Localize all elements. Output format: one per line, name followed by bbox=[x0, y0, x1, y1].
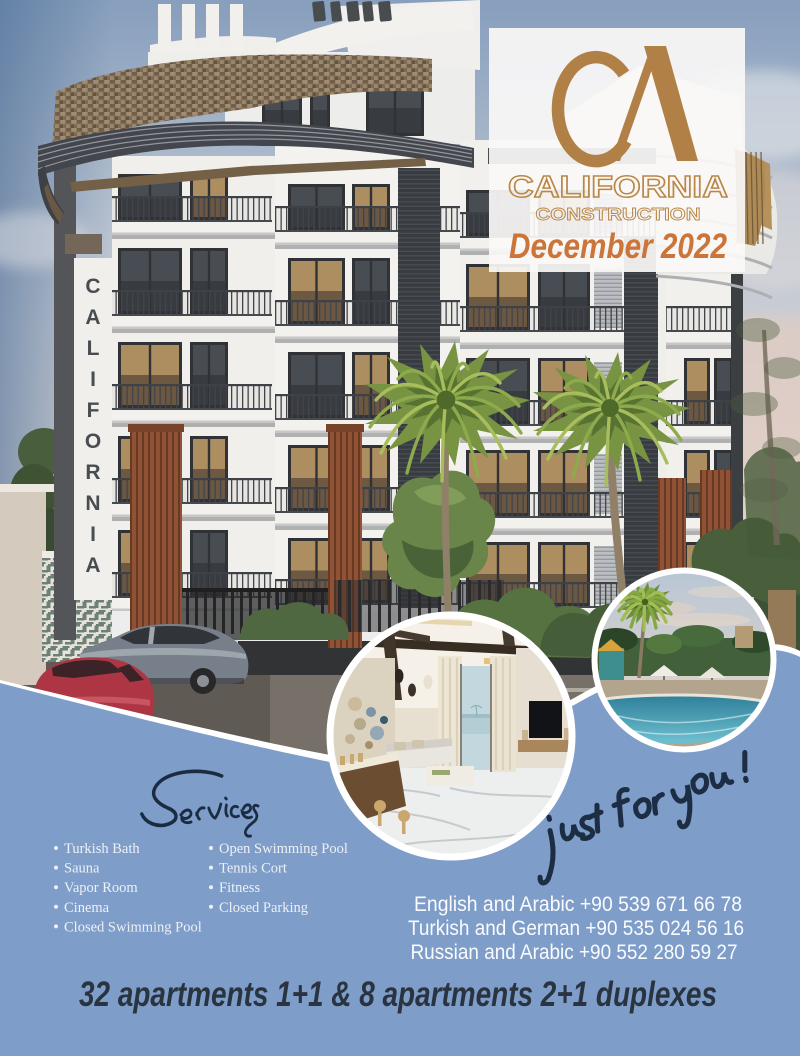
svg-text:Cinema: Cinema bbox=[64, 900, 110, 916]
svg-text:32 apartments 1+1 & 8 apartmen: 32 apartments 1+1 & 8 apartments 2+1 dup… bbox=[79, 975, 717, 1014]
svg-text:Closed Swimming Pool: Closed Swimming Pool bbox=[64, 919, 202, 935]
svg-text:Open Swimming Pool: Open Swimming Pool bbox=[219, 841, 348, 857]
svg-text:Fitness: Fitness bbox=[219, 880, 260, 896]
svg-text:English and Arabic +90 539 671: English and Arabic +90 539 671 66 78 bbox=[414, 893, 742, 916]
svg-text:Russian and Arabic +90 552 280: Russian and Arabic +90 552 280 59 27 bbox=[411, 941, 738, 964]
svg-text:Turkish and German +90 535 024: Turkish and German +90 535 024 56 16 bbox=[408, 917, 744, 940]
svg-text:Sauna: Sauna bbox=[64, 861, 100, 877]
svg-text:Turkish Bath: Turkish Bath bbox=[64, 841, 140, 857]
svg-text:Tennis Cort: Tennis Cort bbox=[219, 861, 287, 877]
svg-text:Closed Parking: Closed Parking bbox=[219, 900, 308, 916]
svg-text:Vapor Room: Vapor Room bbox=[64, 880, 138, 896]
